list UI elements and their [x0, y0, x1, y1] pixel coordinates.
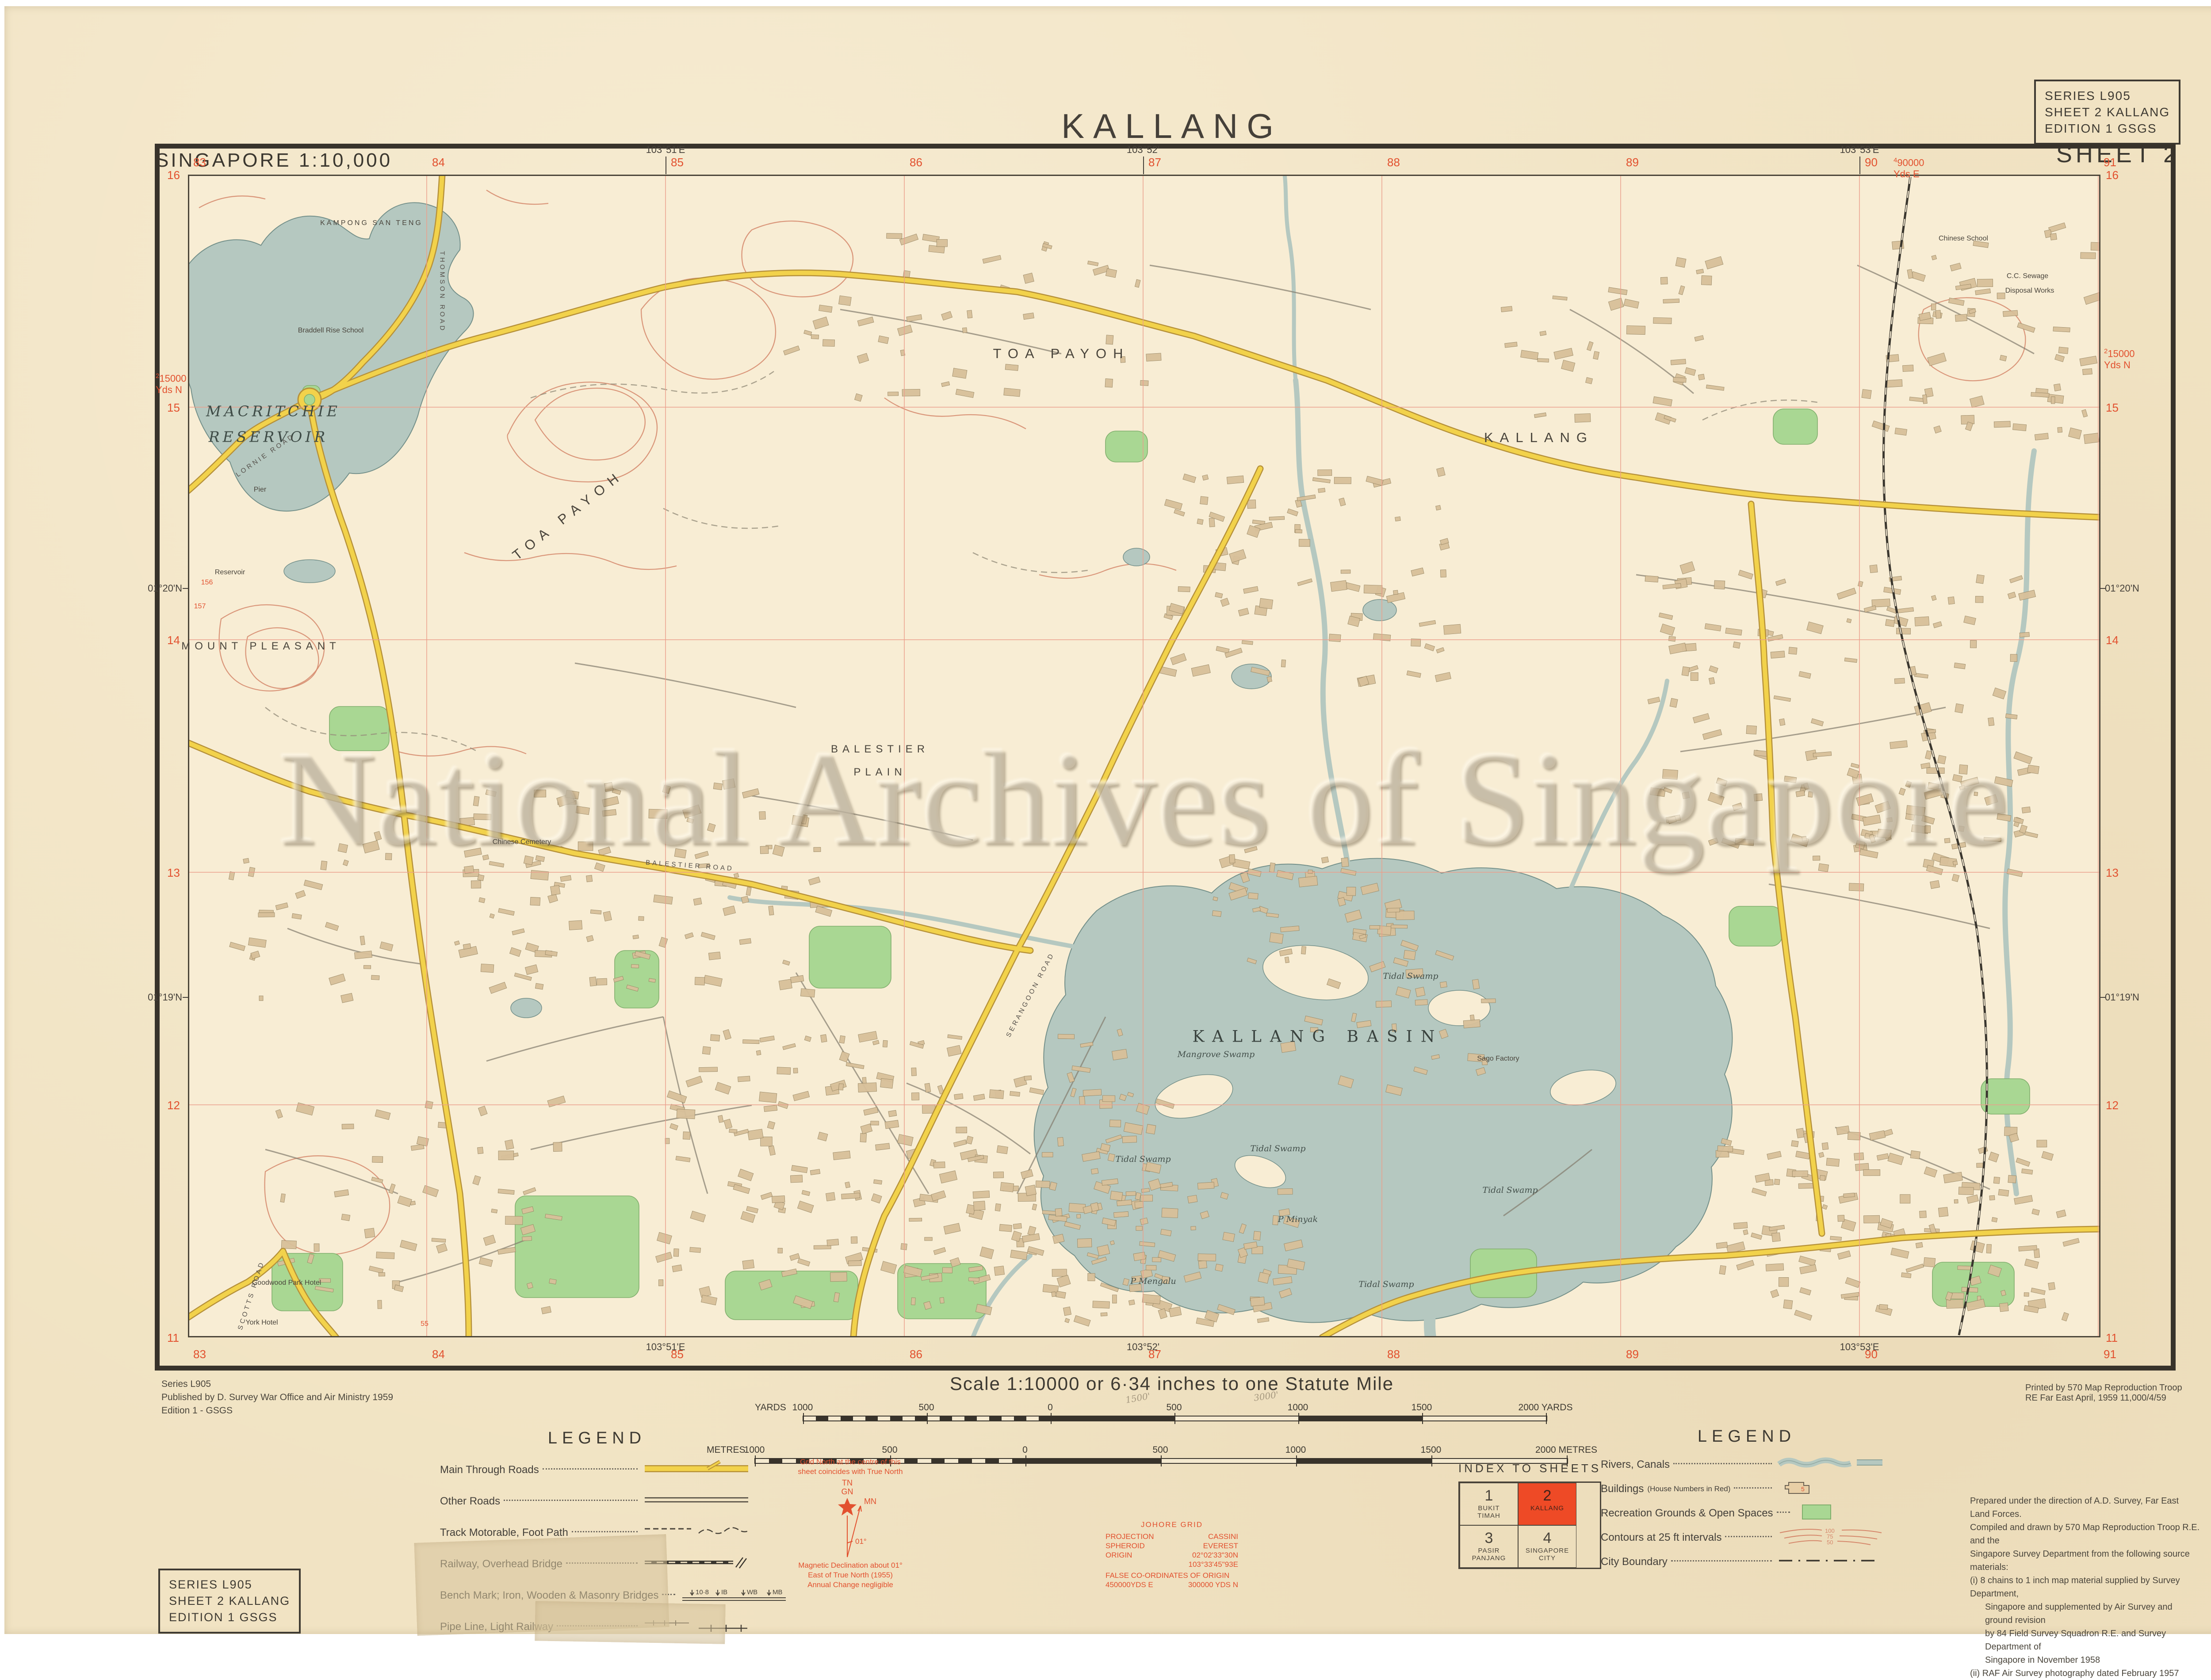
declination-arrows: TN GN MN 01° [777, 1477, 923, 1561]
legend-item-note: (House Numbers in Red) [1647, 1485, 1730, 1493]
place-label: York Hotel [245, 1319, 278, 1327]
yards-seg [989, 1417, 1002, 1420]
johore-row-value: 103°33'45"93E [1188, 1560, 1238, 1569]
svg-text:5: 5 [1801, 1485, 1805, 1493]
yards-major-tick [1422, 1413, 1423, 1424]
index-sheet-name: PANJANG [1460, 1554, 1518, 1562]
johore-grid-block: JOHORE GRID PROJECTIONCASSINISPHEROIDEVE… [1105, 1520, 1238, 1589]
index-sheet-name: TIMAH [1460, 1512, 1518, 1520]
legend-item-label: Rivers, Canals [1601, 1459, 1670, 1471]
place-label: 55 [421, 1320, 428, 1328]
longitude-tick-top [1143, 157, 1144, 174]
false-coords-title: FALSE CO-ORDINATES OF ORIGIN [1105, 1571, 1238, 1580]
credits-line: (ii) RAF Air Survey photography dated Fe… [1970, 1667, 2200, 1680]
legend-item-boundary: City Boundary [1601, 1551, 1886, 1573]
place-label: Chinese School [1939, 235, 1988, 243]
legend-symbol-river [1775, 1454, 1886, 1473]
tape-artifact [535, 1601, 726, 1644]
metres-seg [1012, 1459, 1026, 1463]
index-sheet-number: 3 [1460, 1529, 1518, 1547]
publisher-note-line: Edition 1 - GSGS [161, 1404, 393, 1417]
printer-note: Printed by 570 Map Reproduction Troop RE… [2025, 1383, 2184, 1403]
legend-item-other_road: Other Roads [440, 1490, 752, 1512]
legend-heading-right: LEGEND [1698, 1427, 1796, 1446]
grid-northing-left: 11 [167, 1331, 179, 1345]
index-sheet-3: 3PASIRPANJANG [1460, 1525, 1518, 1568]
credits-line: by 84 Field Survey Squadron R.E. and Sur… [1970, 1627, 2200, 1653]
johore-row-value: CASSINI [1208, 1532, 1238, 1541]
yards-tick: 0 [1048, 1402, 1053, 1413]
yards-unit: YARDS [755, 1402, 786, 1413]
yards-major-tick [1298, 1413, 1299, 1424]
legend-leader-dots [1777, 1511, 1790, 1513]
yards-tick: 1500 [1412, 1402, 1432, 1413]
publisher-note-line: Series L905 [161, 1378, 393, 1391]
grid-easting-bottom: 83 [193, 1348, 206, 1361]
yards-major-tick [1051, 1413, 1052, 1424]
yards-tick: 500 [1166, 1402, 1182, 1413]
grid-easting-bottom: 84 [432, 1348, 445, 1361]
magnetic-north-label: MN [864, 1497, 876, 1506]
place-label: Braddell Rise School [298, 327, 364, 335]
longitude-label-top: 103°51'E [646, 144, 685, 156]
svg-text:50: 50 [1827, 1539, 1833, 1546]
scale-statement: Scale 1:10000 or 6·34 inches to one Stat… [950, 1373, 1394, 1394]
legend-symbol-main_road [641, 1459, 752, 1478]
place-label: Pier [254, 486, 266, 494]
metres-seg [1297, 1459, 1432, 1463]
johore-row-value: EVEREST [1203, 1541, 1238, 1550]
index-title: INDEX TO SHEETS [1458, 1462, 1601, 1475]
latitude-label-right: 01°19'N [2105, 992, 2139, 1003]
legend-heading-left: LEGEND [548, 1429, 646, 1448]
grid-easting-top: 85 [671, 156, 684, 169]
yards-seg [841, 1417, 853, 1420]
place-label: Tidal Swamp [1482, 1185, 1538, 1195]
place-label: Sago Factory [1477, 1055, 1519, 1063]
legend-symbol [641, 1490, 752, 1512]
yards-end: 2000 YARDS [1519, 1402, 1573, 1413]
index-sheet-number: 4 [1519, 1529, 1576, 1547]
metres-major-tick [1431, 1455, 1432, 1466]
legend-symbol-boundary [1775, 1551, 1886, 1570]
legend-item-label: Main Through Roads [440, 1464, 539, 1476]
grid-northing-left: 12 [167, 1099, 180, 1112]
longitude-label-top: 103°53'E [1840, 144, 1879, 156]
grid-northing-right: 12 [2106, 1099, 2119, 1112]
legend-symbol-other_road [641, 1490, 752, 1510]
place-label: BALESTIER [831, 743, 929, 756]
false-coords-values: 450000YDS E 300000 YDS N [1105, 1580, 1238, 1589]
yards-seg [1051, 1417, 1175, 1420]
yards-seg [816, 1417, 828, 1420]
latitude-label-right: 01°20'N [2105, 583, 2139, 594]
johore-grid-row: SPHEROIDEVEREST [1105, 1541, 1238, 1550]
yards-seg [890, 1417, 903, 1420]
northing-value-left: 215000Yds N [156, 370, 187, 396]
legend-leader-dots [504, 1499, 638, 1501]
longitude-label-bottom: 103°53'E [1840, 1341, 1879, 1353]
place-label: MOUNT PLEASANT [181, 640, 340, 653]
index-sheet-4: 4SINGAPORECITY [1518, 1525, 1576, 1568]
yards-seg [915, 1417, 927, 1420]
place-label: Tidal Swamp [1115, 1154, 1171, 1164]
place-label: Disposal Works [2005, 287, 2054, 295]
index-grid: 1BUKITTIMAH2KALLANG3PASIRPANJANG4SINGAPO… [1458, 1481, 1601, 1569]
legend-symbol [641, 1459, 752, 1481]
index-sheet-name: KALLANG [1519, 1504, 1576, 1512]
johore-row-label: ORIGIN [1105, 1550, 1132, 1560]
place-label: Chinese Cemetery [493, 838, 551, 846]
grid-easting-bottom: 91 [2104, 1348, 2116, 1361]
legend-item-label: Contours at 25 ft intervals [1601, 1531, 1721, 1544]
index-sheet-number: 2 [1519, 1487, 1576, 1504]
metres-major-tick [1025, 1455, 1026, 1466]
declination-diagram: Grid North at the centre of this sheet c… [777, 1457, 923, 1590]
false-coords-east: 450000YDS E [1105, 1580, 1153, 1589]
grid-easting-top: 86 [910, 156, 922, 169]
declination-note1: Magnetic Declination about 01° [777, 1561, 923, 1570]
legend-item-label: Track Motorable, Foot Path [440, 1527, 568, 1539]
legend-symbol-contours: 1007550 [1775, 1527, 1886, 1546]
latitude-tick-left [183, 588, 189, 589]
index-sheet-name: PASIR [1460, 1547, 1518, 1554]
metres-major-tick [755, 1455, 756, 1466]
place-label: PLAIN [853, 766, 906, 779]
grid-northing-left: 14 [167, 634, 180, 647]
declination-angle: 01° [855, 1537, 867, 1546]
legend-symbol-green [1794, 1502, 1904, 1522]
yards-seg [1039, 1417, 1051, 1420]
legend-symbol [1775, 1454, 1886, 1475]
map-neatline-border [155, 144, 2176, 1371]
johore-grid-rows: PROJECTIONCASSINISPHEROIDEVERESTORIGIN02… [1105, 1532, 1238, 1569]
easting-value-label: 490000Yds E [1894, 155, 1924, 180]
credits-line: Singapore in November 1958 [1970, 1653, 2200, 1667]
grid-northing-right: 15 [2106, 401, 2119, 415]
grid-easting-top: 91 [2104, 156, 2116, 169]
legend-item-river: Rivers, Canals [1601, 1454, 1886, 1475]
legend-symbol: 5 [1775, 1478, 1886, 1500]
metres-tick: 1500 [1421, 1445, 1442, 1455]
index-sheet-1: 1BUKITTIMAH [1460, 1483, 1518, 1525]
metres-seg [958, 1459, 972, 1463]
declination-note3: Annual Change negligible [777, 1580, 923, 1590]
grid-easting-top: 89 [1626, 156, 1639, 169]
latitude-tick-right [2100, 997, 2106, 998]
legend-symbol [1775, 1551, 1886, 1573]
place-label: RESERVOIR [209, 428, 329, 446]
metres-tick: 500 [882, 1445, 897, 1455]
longitude-label-bottom: 103°52' [1127, 1341, 1159, 1353]
credits-line: Singapore Survey Department from the fol… [1970, 1547, 2200, 1574]
place-label: 156 [201, 579, 213, 587]
index-sheet-name: SINGAPORE [1519, 1547, 1576, 1554]
metres-seg [931, 1459, 945, 1463]
declination-line2: sheet coincides with True North [777, 1467, 923, 1477]
legend-symbol [1794, 1502, 1904, 1524]
yards-major-tick [803, 1413, 804, 1424]
angle-tick [847, 1541, 853, 1543]
legend-item-green: Recreation Grounds & Open Spaces [1601, 1502, 1886, 1524]
place-label: Tidal Swamp [1383, 971, 1438, 981]
place-label: Goodwood Park Hotel [252, 1279, 321, 1287]
grid-easting-top: 83 [193, 156, 206, 169]
declination-note2: East of True North (1955) [777, 1570, 923, 1580]
yards-tick: 1000 [1288, 1402, 1308, 1413]
grid-northing-left: 16 [167, 168, 180, 182]
place-label: P Mengalu [1130, 1276, 1176, 1286]
credits-line: Compiled and drawn by 570 Map Reproducti… [1970, 1521, 2200, 1547]
metres-tick: 1000 [1285, 1445, 1306, 1455]
yards-major-tick [1546, 1413, 1547, 1424]
place-label: Mangrove Swamp [1178, 1050, 1255, 1059]
index-sheet-name: BUKIT [1460, 1504, 1518, 1512]
publisher-note: Series L905Published by D. Survey War Of… [161, 1378, 393, 1417]
johore-row-label: SPHEROID [1105, 1541, 1145, 1550]
declination-line1: Grid North at the centre of this [777, 1457, 923, 1467]
credits-line: Singapore and supplemented by Air Survey… [1970, 1600, 2200, 1627]
place-label: KAMPONG SAN TENG [320, 219, 423, 227]
legend-item-label: City Boundary [1601, 1556, 1668, 1568]
legend-symbol-building: 5 [1775, 1478, 1886, 1497]
grid-easting-bottom: 86 [910, 1348, 922, 1361]
yards-seg [865, 1417, 878, 1420]
johore-row-label: PROJECTION [1105, 1532, 1154, 1541]
legend-leader-dots [1671, 1560, 1772, 1562]
series-box-line: SHEET 2 KALLANG [169, 1593, 290, 1609]
johore-grid-row: 103°33'45"93E [1105, 1560, 1238, 1569]
place-label: Tidal Swamp [1358, 1279, 1414, 1289]
johore-grid-row: PROJECTIONCASSINI [1105, 1532, 1238, 1541]
legend-symbol: 1007550 [1775, 1527, 1886, 1548]
legend-symbol: 10·8IBWBMB [679, 1585, 789, 1606]
index-to-sheets: INDEX TO SHEETS 1BUKITTIMAH2KALLANG3PASI… [1458, 1462, 1601, 1569]
grid-north-label: GN [842, 1487, 853, 1496]
latitude-label-left: 01°20'N [148, 583, 182, 594]
legend-item-contours: Contours at 25 ft intervals1007550 [1601, 1527, 1886, 1548]
place-label: THOMSON ROAD [439, 251, 446, 332]
metres-seg [1026, 1459, 1161, 1463]
grid-northing-right: 16 [2106, 168, 2119, 182]
grid-northing-left: 15 [167, 401, 180, 415]
false-coords-north: 300000 YDS N [1188, 1580, 1238, 1589]
legend-leader-dots [1734, 1487, 1772, 1489]
legend-leader-dots [543, 1468, 638, 1470]
legend-leader-dots [1725, 1535, 1772, 1537]
yards-bar [803, 1416, 1547, 1421]
grid-easting-top: 87 [1148, 156, 1161, 169]
metres-tick: 1000 [744, 1445, 765, 1455]
svg-text:WB: WB [747, 1588, 757, 1596]
publisher-note-line: Published by D. Survey War Office and Ai… [161, 1391, 393, 1404]
grid-easting-top: 84 [432, 156, 445, 169]
longitude-label-bottom: 103°51'E [646, 1341, 685, 1353]
grid-easting-top: 90 [1865, 156, 1878, 169]
metres-tick: 0 [1022, 1445, 1028, 1455]
place-label: P Minyak [1278, 1214, 1318, 1224]
north-star-icon [838, 1498, 857, 1516]
credits-line: Prepared under the direction of A.D. Sur… [1970, 1494, 2200, 1521]
grid-northing-right: 11 [2106, 1331, 2118, 1345]
yards-tick: 1000 [792, 1402, 813, 1413]
legend-leader-dots [1673, 1462, 1772, 1464]
yards-seg [1299, 1417, 1423, 1420]
credits-line: (i) 8 chains to 1 inch map material supp… [1970, 1574, 2200, 1600]
legend-right: Rivers, CanalsBuildings(House Numbers in… [1601, 1454, 1886, 1586]
latitude-tick-left [183, 997, 189, 998]
longitude-label-top: 103°52' [1127, 144, 1159, 156]
metres-tick: 500 [1152, 1445, 1168, 1455]
svg-text:IB: IB [721, 1588, 727, 1596]
metres-major-tick [1161, 1455, 1162, 1466]
latitude-tick-right [2100, 588, 2106, 589]
johore-row-value: 02°02'33"30N [1192, 1550, 1238, 1560]
metres-unit: METRES [707, 1445, 746, 1455]
johore-grid-row: ORIGIN02°02'33"30N [1105, 1550, 1238, 1560]
svg-text:10·8: 10·8 [696, 1588, 709, 1596]
grid-easting-bottom: 88 [1387, 1348, 1400, 1361]
place-label: KALLANG BASIN [1193, 1028, 1443, 1046]
place-label: Tidal Swamp [1250, 1144, 1305, 1153]
series-box-line: SERIES L905 [169, 1577, 290, 1593]
longitude-tick-top [1859, 157, 1860, 174]
yards-major-tick [1174, 1413, 1175, 1424]
yards-seg [940, 1417, 952, 1420]
metres-seg [985, 1459, 999, 1463]
place-label: MACRITCHIE [206, 403, 340, 420]
place-label: Reservoir [215, 569, 245, 577]
grid-easting-top: 88 [1387, 156, 1400, 169]
legend-item-label: Recreation Grounds & Open Spaces [1601, 1507, 1773, 1520]
yards-seg [964, 1417, 977, 1420]
latitude-label-left: 01°19'N [148, 992, 182, 1003]
legend-item-building: Buildings(House Numbers in Red)5 [1601, 1478, 1886, 1500]
index-sheet-name: CITY [1519, 1554, 1576, 1562]
place-label: KALLANG [1484, 430, 1594, 446]
metres-end: 2000 METRES [1535, 1445, 1597, 1455]
legend-symbol-benchmark: 10·8IBWBMB [679, 1585, 789, 1604]
series-box-line: EDITION 1 GSGS [169, 1609, 290, 1626]
grid-northing-right: 14 [2106, 634, 2119, 647]
magnetic-north-line [847, 1506, 861, 1557]
legend-leader-dots [572, 1531, 638, 1532]
place-label: 157 [194, 603, 206, 611]
longitude-tick-top [666, 157, 666, 174]
legend-item-main_road: Main Through Roads [440, 1459, 752, 1481]
place-label: C.C. Sewage [2007, 272, 2048, 280]
legend-item-label: Buildings [1601, 1483, 1644, 1495]
grid-northing-left: 13 [167, 866, 180, 880]
grid-easting-bottom: 89 [1626, 1348, 1639, 1361]
place-label: TOA PAYOH [993, 346, 1130, 362]
yards-tick: 500 [918, 1402, 934, 1413]
metres-major-tick [1296, 1455, 1297, 1466]
grid-northing-right: 13 [2106, 866, 2119, 880]
index-sheet-number: 1 [1460, 1487, 1518, 1504]
legend-item-label: Other Roads [440, 1495, 500, 1508]
credits-paragraph: Prepared under the direction of A.D. Sur… [1970, 1494, 2200, 1680]
true-north-label: TN [842, 1478, 853, 1487]
index-sheet-2: 2KALLANG [1518, 1483, 1576, 1525]
johore-grid-title: JOHORE GRID [1105, 1520, 1238, 1529]
series-box-bottom-left: SERIES L905SHEET 2 KALLANGEDITION 1 GSGS [158, 1569, 301, 1634]
northing-value-right: 215000Yds N [2104, 346, 2135, 371]
yards-seg [1014, 1417, 1026, 1420]
yards-major-tick [927, 1413, 928, 1424]
